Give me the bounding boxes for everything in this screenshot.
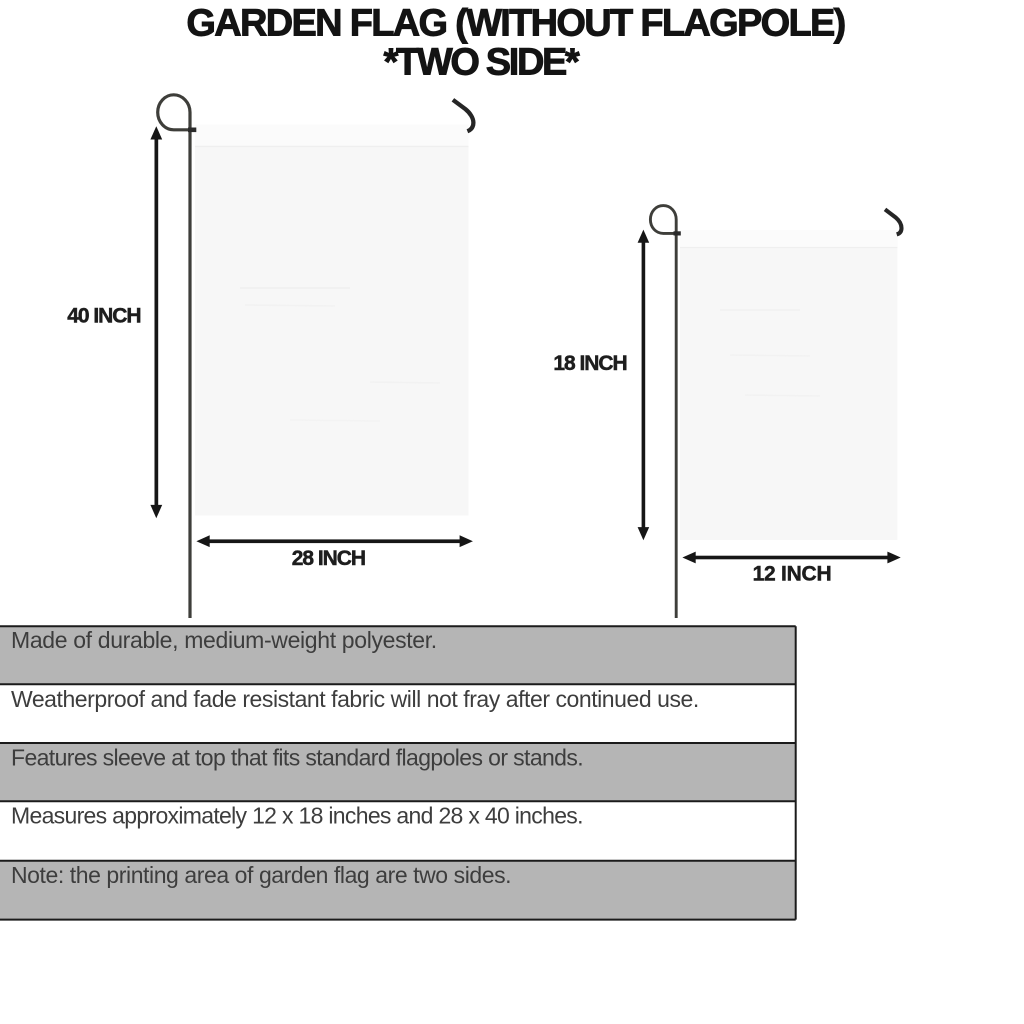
- svg-text:Features sleeve at top that fi: Features sleeve at top that fits standar…: [11, 744, 583, 770]
- svg-text:40 INCH: 40 INCH: [67, 304, 140, 327]
- svg-text:Note: the printing area of gar: Note: the printing area of garden flag a…: [11, 862, 511, 888]
- svg-text:28 INCH: 28 INCH: [292, 547, 365, 570]
- svg-text:12 INCH: 12 INCH: [753, 563, 832, 586]
- svg-text:*TWO SIDE*: *TWO SIDE*: [384, 41, 581, 83]
- svg-text:18 INCH: 18 INCH: [553, 352, 626, 375]
- svg-text:Made of durable, medium-weight: Made of durable, medium-weight polyester…: [11, 627, 437, 653]
- svg-text:GARDEN FLAG (WITHOUT FLAGPOLE): GARDEN FLAG (WITHOUT FLAGPOLE): [186, 3, 844, 45]
- svg-text:Weatherproof and fade resistan: Weatherproof and fade resistant fabric w…: [11, 686, 699, 712]
- svg-text:Measures approximately 12 x 18: Measures approximately 12 x 18 inches an…: [11, 802, 583, 828]
